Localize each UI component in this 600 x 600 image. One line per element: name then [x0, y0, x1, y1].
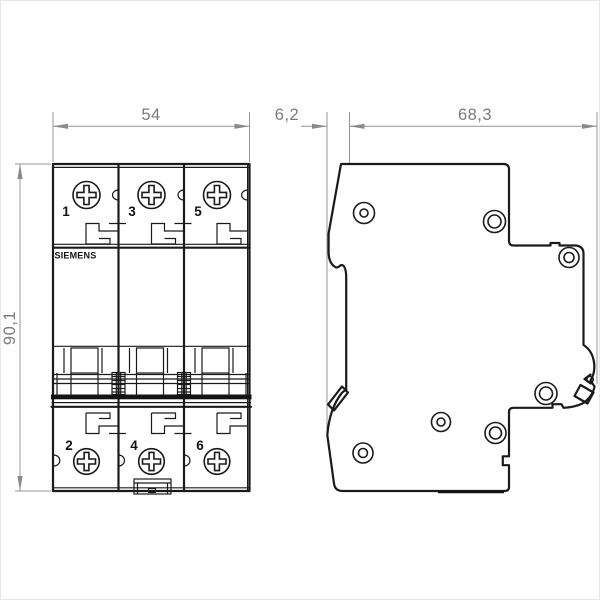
dim-front-height: 90,1	[1, 164, 23, 491]
dim-side-offset: 6,2	[275, 106, 327, 129]
brand-label: SIEMENS	[55, 251, 97, 261]
pole-number-3: 3	[128, 204, 136, 219]
dim-label-side-offset: 6,2	[275, 106, 299, 124]
pole-number-6: 6	[196, 438, 204, 453]
technical-drawing-page: 54 6,2 68,3 90,1	[0, 0, 600, 600]
pole-number-1: 1	[62, 204, 70, 219]
toggle-tie-bar	[51, 395, 252, 400]
pole-number-5: 5	[194, 204, 202, 219]
dim-label-front-width: 54	[141, 106, 160, 124]
pole-number-4: 4	[130, 438, 138, 453]
side-view	[327, 164, 594, 492]
front-view: 1 3 5 SIEMENS	[51, 164, 252, 494]
dim-side-depth: 68,3	[350, 106, 598, 129]
dim-label-front-height: 90,1	[1, 311, 19, 345]
pole-number-2: 2	[65, 438, 73, 453]
dim-front-width: 54	[53, 106, 250, 129]
mcb-dimension-drawing: 54 6,2 68,3 90,1	[1, 1, 600, 600]
dim-label-side-depth: 68,3	[458, 106, 492, 124]
front-body-outline	[53, 164, 250, 491]
